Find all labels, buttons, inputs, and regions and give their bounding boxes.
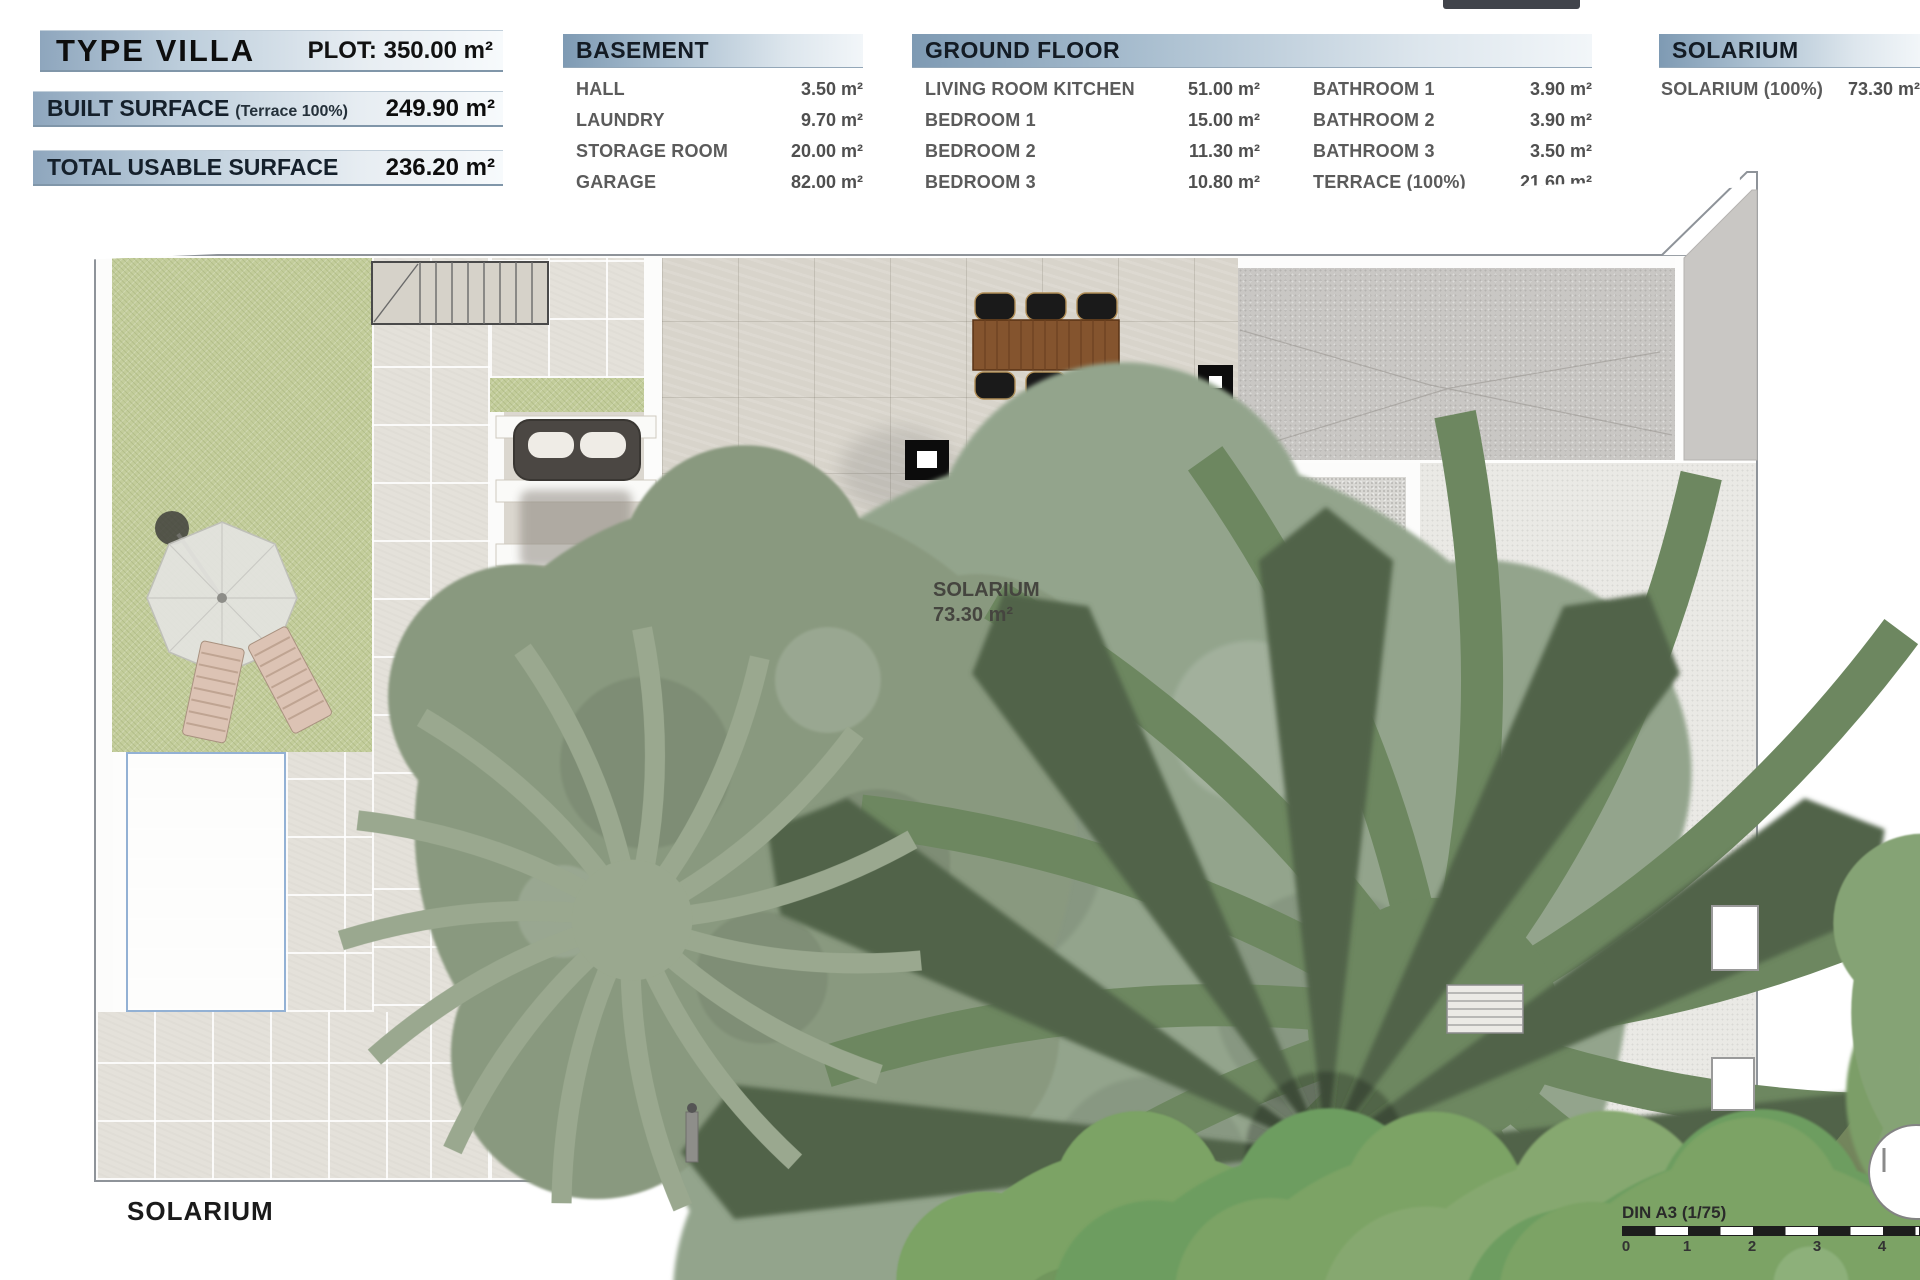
column-marker	[905, 440, 949, 480]
scale-label: DIN A3 (1/75)	[1622, 1203, 1920, 1223]
scale-ruler	[1622, 1226, 1920, 1236]
lamp-post	[686, 1103, 698, 1162]
boundary-openings	[1712, 906, 1758, 1110]
floorplan-page: TYPE VILLA PLOT: 350.00 m² BUILT SURFACE…	[0, 0, 1920, 1280]
staircase-bottom	[1447, 985, 1523, 1033]
solarium-room-label: SOLARIUM 73.30 m²	[933, 578, 1040, 628]
scale-ticks: 0 1 2 3 4	[1622, 1238, 1920, 1256]
garden-parasol-set	[147, 511, 333, 743]
scale-bar: DIN A3 (1/75) 0 1 2 3 4	[1622, 1203, 1920, 1256]
wooden-lounger	[247, 626, 333, 735]
staircase-top	[372, 262, 548, 324]
plan-drawing-overlay	[0, 0, 1920, 1280]
floor-plan-title: SOLARIUM	[127, 1196, 274, 1227]
